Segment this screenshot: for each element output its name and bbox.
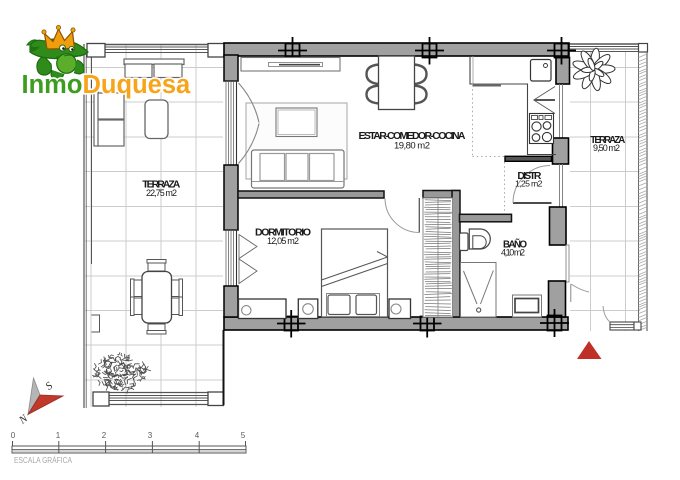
svg-text:0: 0 — [11, 431, 16, 440]
svg-text:19,80 m2: 19,80 m2 — [394, 141, 430, 152]
svg-text:Inmo: Inmo — [22, 71, 83, 99]
svg-text:1: 1 — [56, 431, 61, 440]
svg-text:9,50 m2: 9,50 m2 — [593, 143, 620, 153]
svg-text:2: 2 — [102, 431, 107, 440]
svg-text:12,05 m2: 12,05 m2 — [267, 236, 299, 246]
svg-text:3: 3 — [148, 431, 153, 440]
svg-text:22,75 m2: 22,75 m2 — [146, 188, 177, 198]
svg-text:1,25 m2: 1,25 m2 — [515, 179, 543, 189]
svg-text:5: 5 — [241, 431, 246, 440]
svg-text:4,10 m2: 4,10 m2 — [501, 247, 525, 257]
svg-text:4: 4 — [195, 431, 200, 440]
svg-text:Duquesa: Duquesa — [83, 71, 192, 99]
svg-text:ESCALA GRÁFICA: ESCALA GRÁFICA — [14, 456, 73, 465]
